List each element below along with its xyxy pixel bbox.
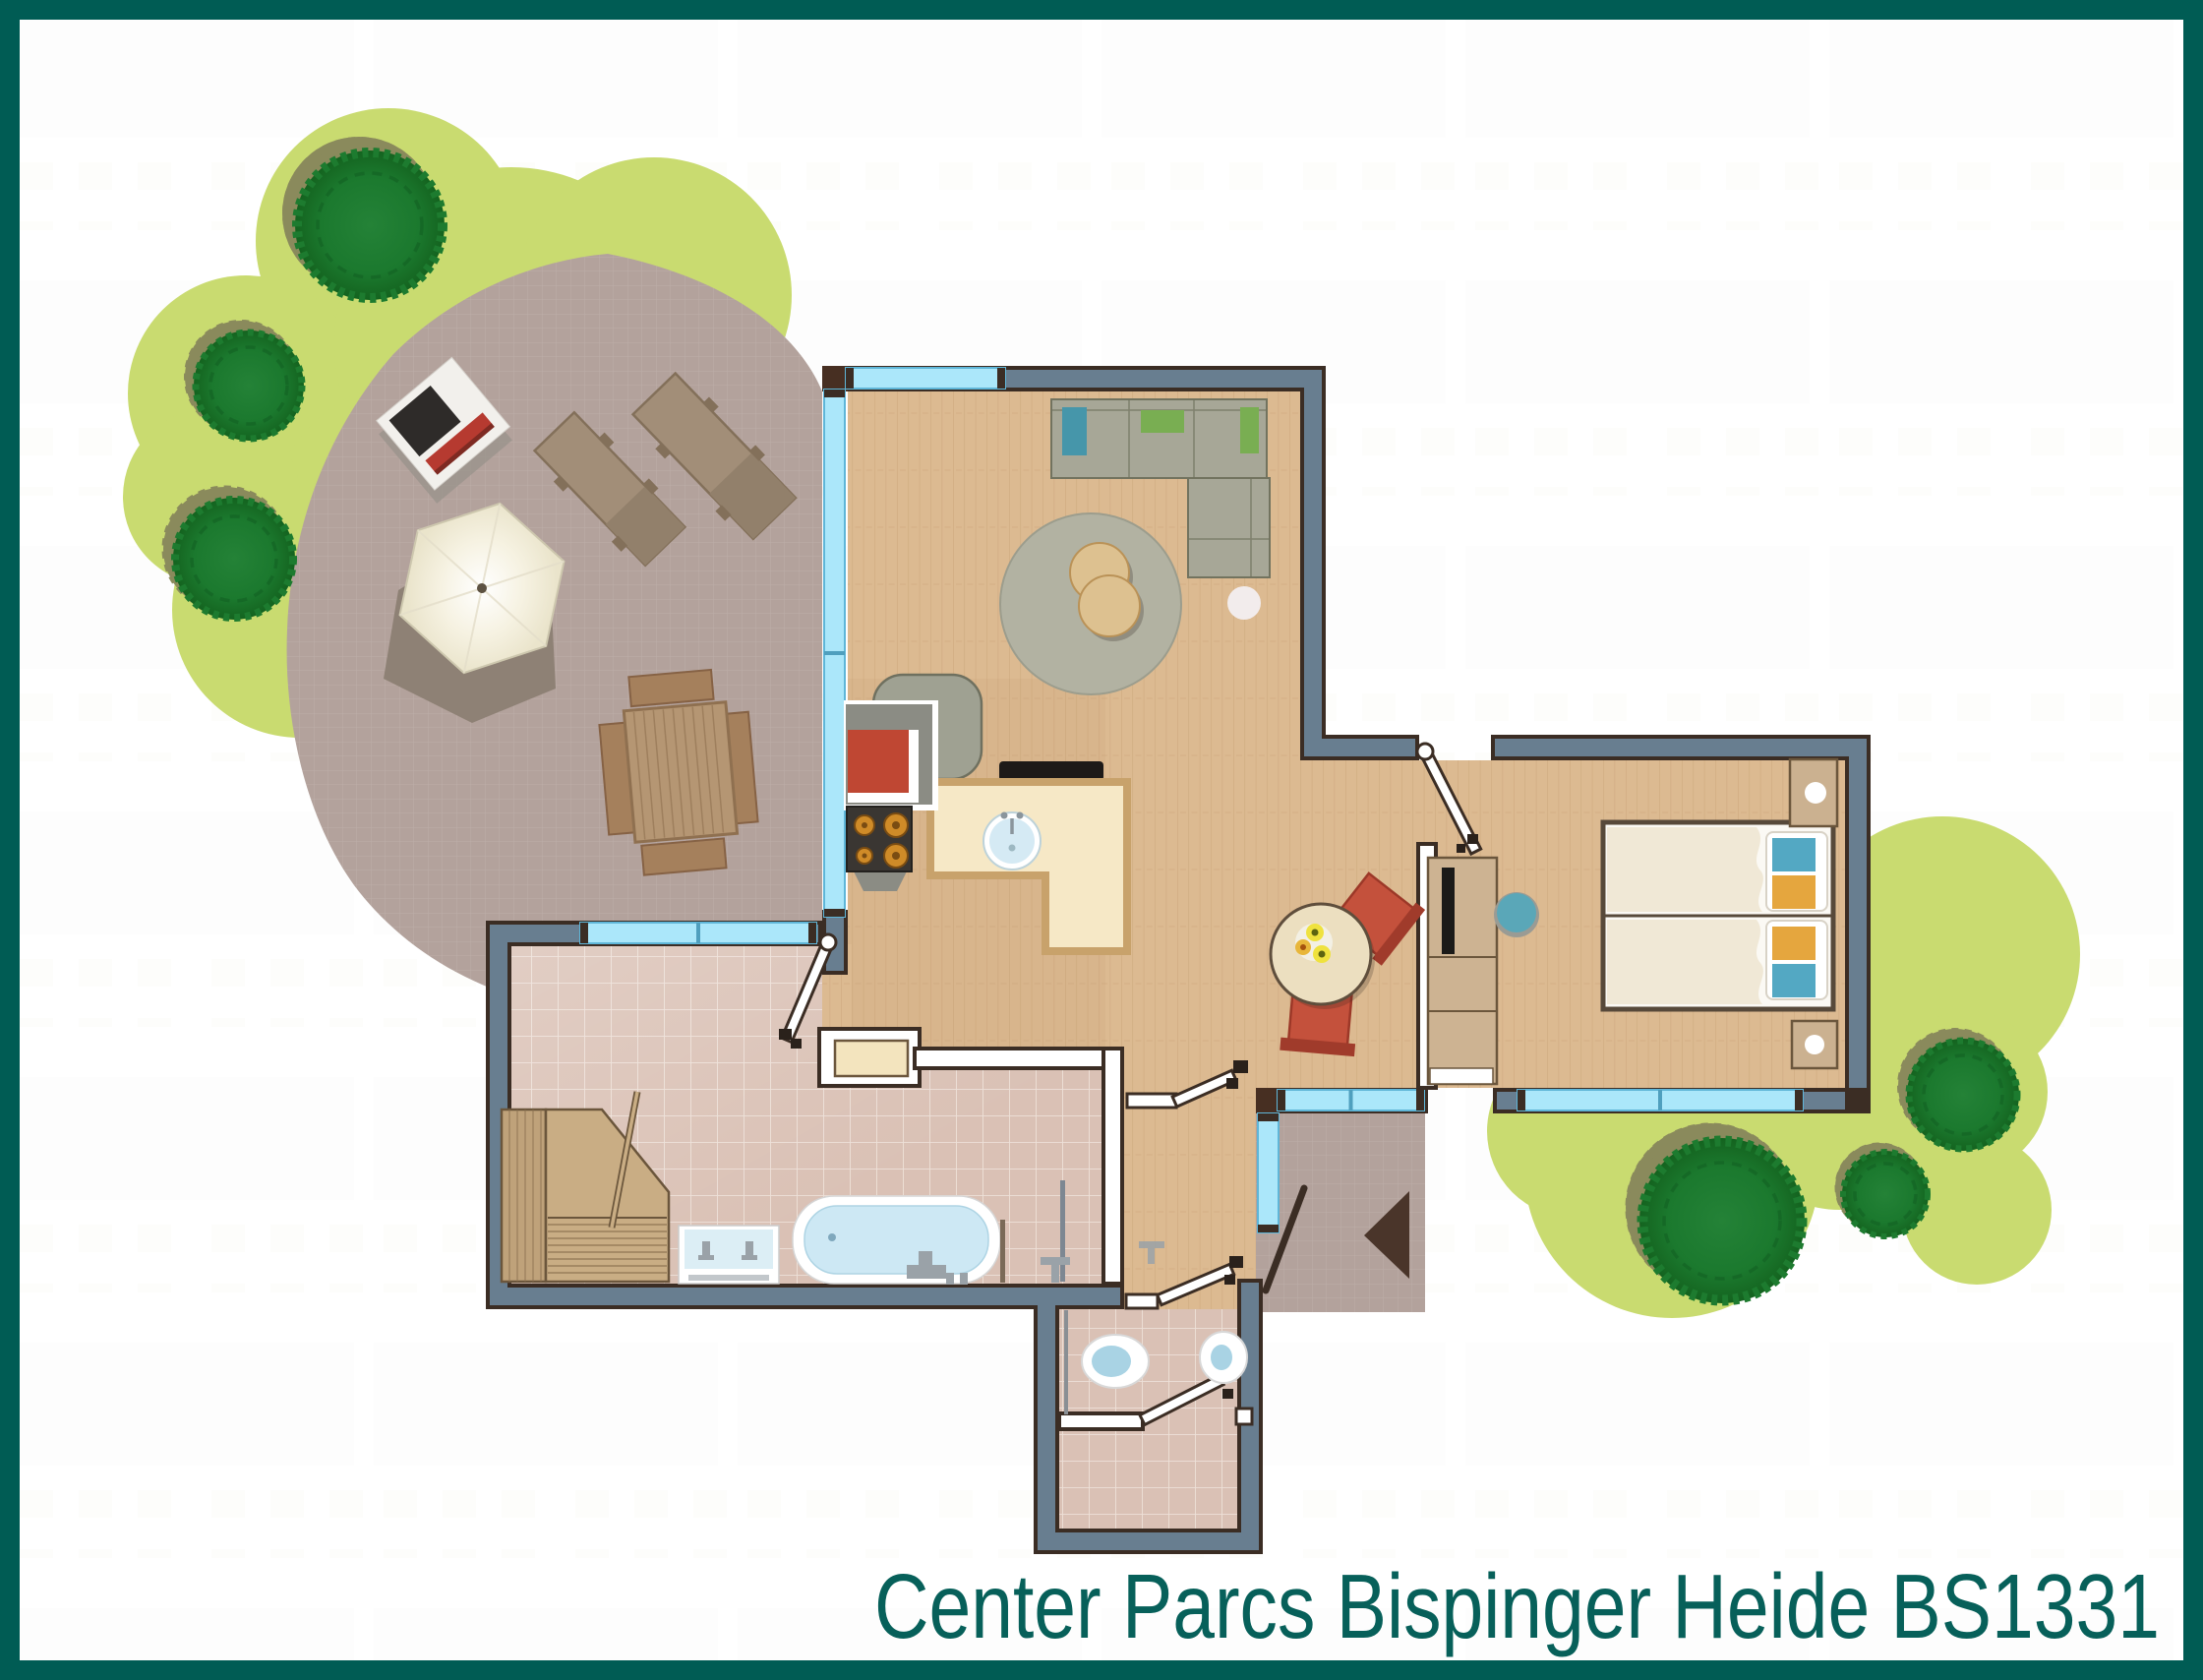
- svg-text:Center Parcs Bispinger Heide B: Center Parcs Bispinger Heide BS1331: [874, 1555, 2160, 1657]
